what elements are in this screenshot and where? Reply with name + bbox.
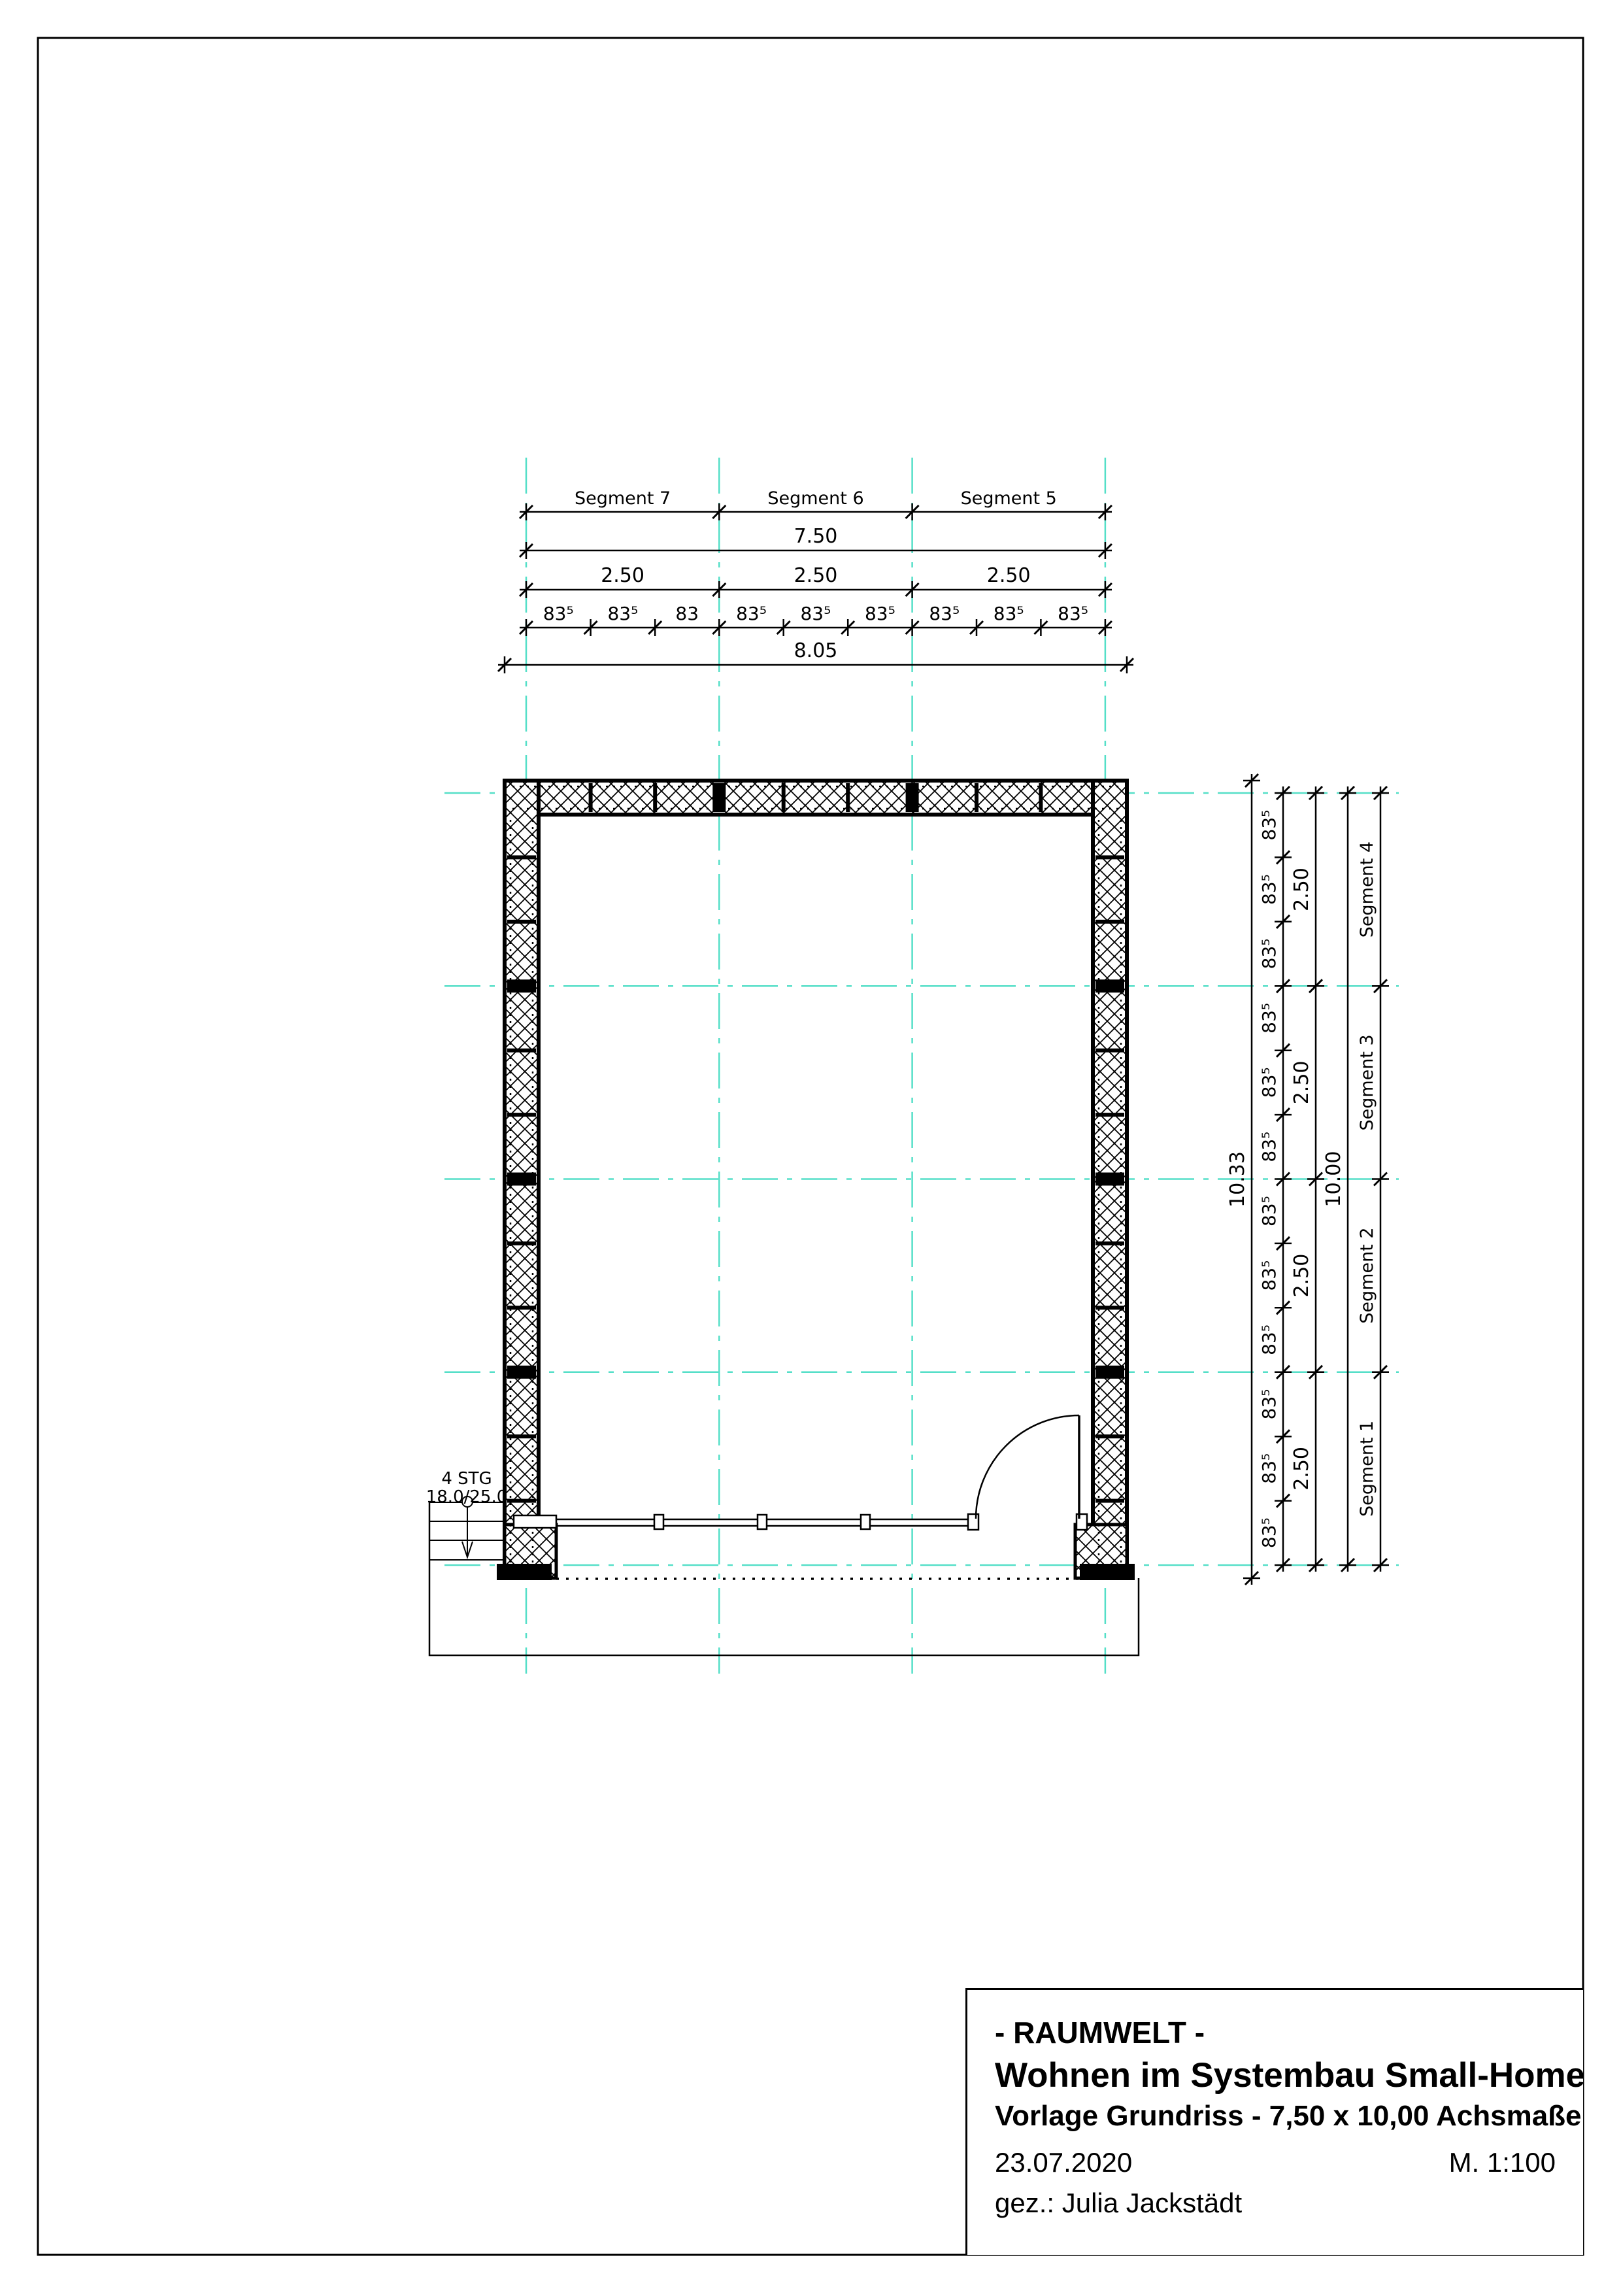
wall-face-dots — [510, 786, 1121, 1569]
dim-label: 83⁵ — [1258, 1517, 1280, 1548]
drawing-author: gez.: Julia Jackstädt — [995, 2187, 1556, 2219]
window-mullion — [654, 1515, 663, 1529]
dim-label: 83⁵ — [1258, 1260, 1280, 1291]
dim-label: 2.50 — [1290, 1254, 1313, 1298]
project-name: - RAUMWELT - — [995, 2015, 1556, 2050]
door-jamb-left — [968, 1514, 978, 1530]
wall-panel-joints — [507, 783, 1124, 1503]
pier-base-right — [1080, 1564, 1135, 1580]
dim-label: 10.00 — [1322, 1151, 1345, 1207]
floor-plan-drawing: 4 STG 18.0/25.0 — [0, 0, 1621, 2293]
drawing-title: Wohnen im Systembau Small-Home — [995, 2055, 1556, 2095]
dim-label: 83⁵ — [1258, 1067, 1280, 1098]
window-band — [514, 1514, 1087, 1530]
dim-label: 2.50 — [987, 564, 1031, 587]
dim-label: 83⁵ — [994, 603, 1024, 624]
dim-label: 8.05 — [794, 639, 838, 662]
dim-label: Segment 1 — [1357, 1421, 1377, 1517]
dim-label: 2.50 — [1290, 1447, 1313, 1491]
dim-label: 83⁵ — [543, 603, 574, 624]
stairs-label-line2: 18.0/25.0 — [426, 1487, 508, 1507]
exterior-walls — [497, 781, 1135, 1580]
dim-label: 83⁵ — [736, 603, 767, 624]
dim-label: Segment 5 — [961, 488, 1057, 509]
dim-label: 83⁵ — [1058, 603, 1088, 624]
window-mullion — [861, 1515, 870, 1529]
dim-label: 83⁵ — [1258, 1325, 1280, 1355]
dim-label: 83⁵ — [1258, 1132, 1280, 1162]
window-mullion — [758, 1515, 767, 1529]
dim-label: 83⁵ — [1258, 1003, 1280, 1034]
dim-label: 83 — [675, 603, 699, 624]
dim-label: Segment 3 — [1357, 1034, 1377, 1130]
title-block: - RAUMWELT - Wohnen im Systembau Small-H… — [965, 1988, 1583, 2255]
entrance-door — [976, 1415, 1079, 1519]
date-scale-row: 23.07.2020 M. 1:100 — [995, 2147, 1556, 2178]
dim-label: 83⁵ — [1258, 1389, 1280, 1419]
drawing-subtitle: Vorlage Grundriss - 7,50 x 10,00 Achsmaß… — [995, 2100, 1556, 2133]
dim-label: 83⁵ — [929, 603, 960, 624]
dim-label: 2.50 — [601, 564, 644, 587]
drawing-scale: M. 1:100 — [1449, 2147, 1556, 2178]
pier-base-left — [497, 1564, 552, 1580]
dim-label: 2.50 — [1290, 868, 1313, 911]
dim-label: 83⁵ — [1258, 874, 1280, 905]
dim-label: 83⁵ — [1258, 939, 1280, 970]
top-dimension-labels: Segment 7 Segment 6 Segment 5 7.50 2.50 … — [543, 488, 1088, 662]
dim-label: Segment 2 — [1357, 1227, 1377, 1323]
dim-label: 83⁵ — [865, 603, 895, 624]
dim-label: 2.50 — [1290, 1061, 1313, 1105]
sheet-border — [38, 38, 1583, 2255]
dim-label: 83⁵ — [1258, 1453, 1280, 1484]
dim-label: Segment 6 — [767, 488, 863, 509]
dim-label: 7.50 — [794, 525, 838, 548]
axis-grid — [444, 458, 1399, 1674]
dim-label: 83⁵ — [1258, 810, 1280, 841]
dim-label: 83⁵ — [1258, 1196, 1280, 1226]
door-swing-arc — [976, 1415, 1079, 1519]
window-sill-tab — [514, 1515, 556, 1528]
dim-label: Segment 7 — [575, 488, 671, 509]
dim-label: 10.33 — [1226, 1151, 1249, 1207]
drawing-date: 23.07.2020 — [995, 2147, 1132, 2178]
dim-label: 2.50 — [794, 564, 838, 587]
dim-label: 83⁵ — [800, 603, 831, 624]
dim-label: 83⁵ — [607, 603, 638, 624]
dim-label: Segment 4 — [1357, 841, 1377, 937]
stairs-label-line1: 4 STG — [441, 1469, 492, 1489]
